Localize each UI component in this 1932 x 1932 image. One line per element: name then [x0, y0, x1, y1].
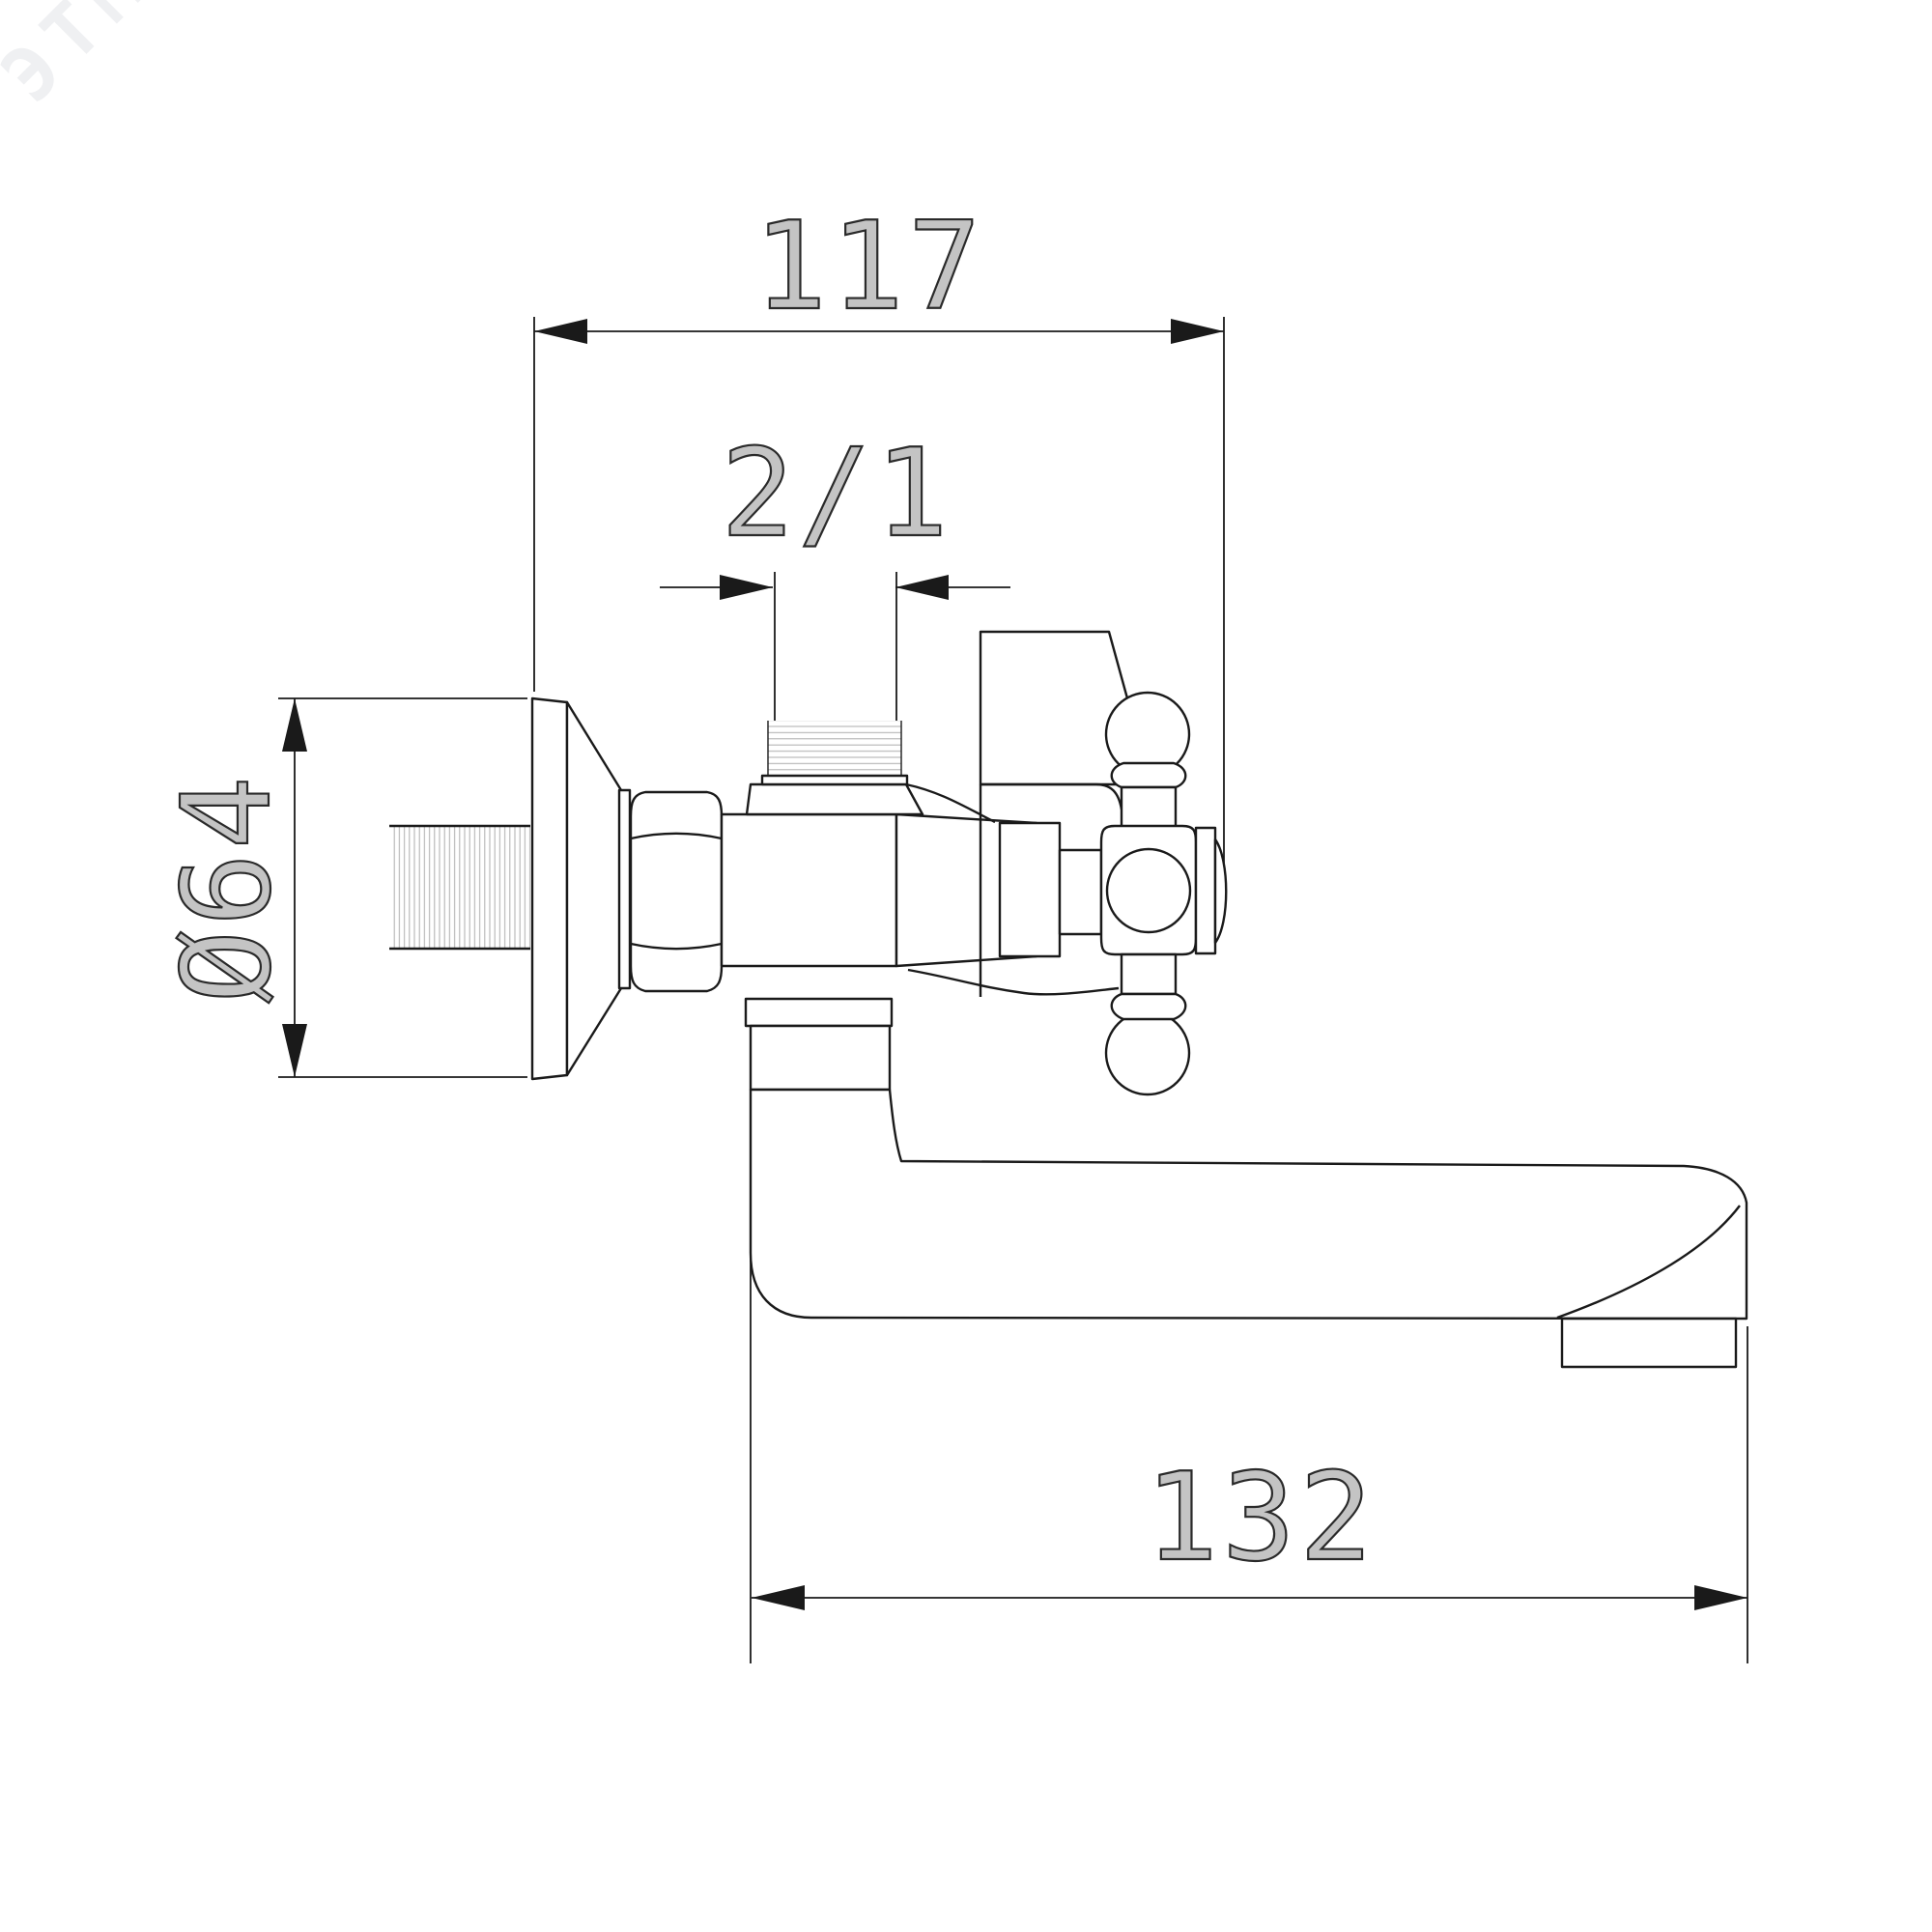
- arrow-2-1-left: [720, 575, 773, 600]
- handle-top-neck: [1122, 787, 1176, 828]
- hex-nut: [631, 792, 722, 991]
- arrow-117-left: [534, 319, 587, 344]
- escutcheon-ring: [619, 790, 630, 988]
- spout-body: [751, 1090, 1747, 1319]
- valve-body-shoulder: [747, 784, 923, 814]
- rear-block-bottom-curve: [980, 784, 1122, 810]
- arrow-2-1-right: [895, 575, 949, 600]
- top-thread-flange: [762, 776, 907, 784]
- arrow-132-left: [752, 1585, 805, 1610]
- top-thread-texture: [768, 721, 901, 776]
- top-port-thread: [762, 721, 907, 784]
- dimension-arrows: [282, 319, 1747, 1610]
- spout-collar: [746, 999, 892, 1026]
- faucet-drawing: [389, 632, 1747, 1367]
- bonnet-step-2: [1060, 850, 1101, 934]
- technical-drawing: [0, 0, 1932, 1932]
- bonnet-step-1: [1000, 823, 1060, 956]
- handle-end-plate: [1196, 828, 1215, 953]
- escutcheon-cone: [567, 702, 621, 1075]
- arrow-117-right: [1171, 319, 1224, 344]
- wall-escutcheon-plate: [532, 698, 567, 1079]
- handle-front-arm-circle: [1107, 849, 1190, 932]
- rear-block-body: [980, 632, 1127, 784]
- handle-bottom-neck: [1122, 954, 1176, 994]
- dimension-lines: [278, 317, 1747, 1663]
- handle-bottom-collar: [1112, 994, 1186, 1019]
- body-bottom-curve: [908, 970, 1119, 994]
- wall-thread-pipe: [389, 826, 530, 949]
- drawing-canvas: ЭТМ: [0, 0, 1932, 1932]
- arrow-132-right: [1694, 1585, 1747, 1610]
- valve-body: [722, 814, 896, 966]
- wall-thread-texture: [390, 827, 530, 948]
- spout-down-pipe: [751, 1026, 890, 1090]
- handle-bottom-ball: [1106, 1011, 1189, 1094]
- handle-top-collar: [1112, 763, 1186, 787]
- hex-nut-body: [631, 792, 722, 991]
- arrow-64-bottom: [282, 1024, 307, 1077]
- cross-handle: [1101, 693, 1226, 1094]
- arrow-64-top: [282, 698, 307, 752]
- spout-aerator: [1562, 1319, 1736, 1367]
